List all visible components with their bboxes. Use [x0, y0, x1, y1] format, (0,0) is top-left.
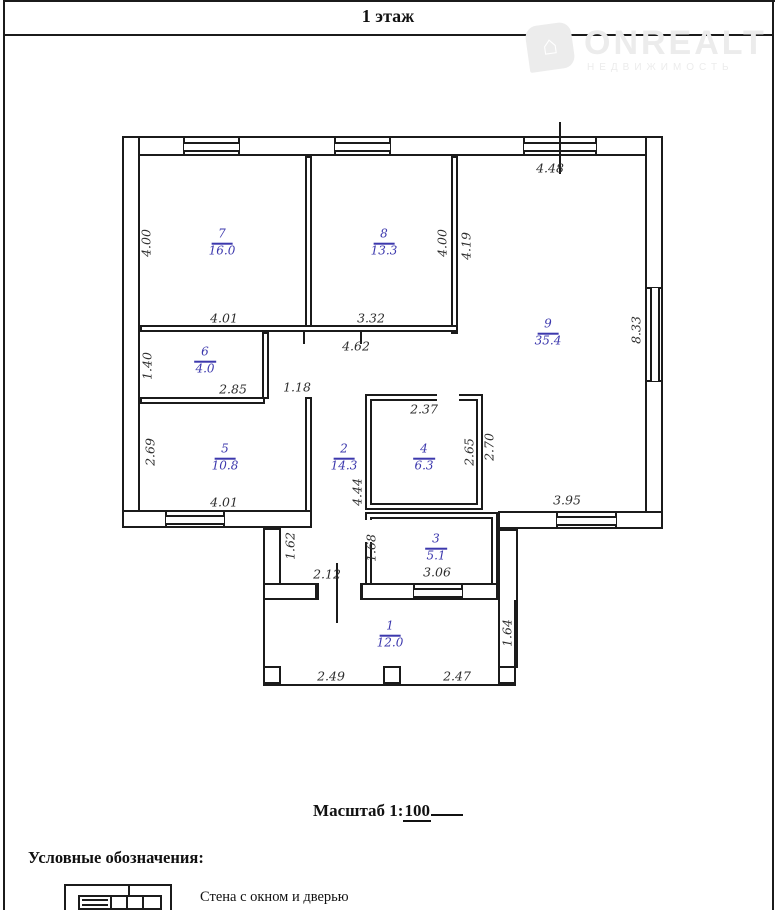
entry-door-tick-left — [317, 583, 319, 600]
dimension-label: 1.62 — [283, 532, 298, 560]
porch-pillar-left — [263, 666, 281, 684]
dimension-label: 3.95 — [553, 493, 581, 508]
porch-pillar-right — [498, 666, 516, 684]
dimension-label: 2.70 — [482, 433, 497, 461]
room-label-7: 716.0 — [209, 228, 236, 259]
dimension-label: 1.40 — [140, 352, 155, 380]
watermark-brand: ONREALT — [584, 24, 767, 63]
dimension-label: 4.48 — [536, 161, 564, 176]
room-label-4: 46.3 — [413, 443, 435, 474]
room-number: 8 — [373, 228, 395, 245]
window-room7 — [183, 136, 240, 156]
legend-heading: Условные обозначения: — [28, 848, 204, 868]
scale-note: Масштаб 1:100 — [0, 801, 776, 821]
scale-underline — [431, 814, 463, 816]
wall-below-rooms7-8 — [140, 325, 458, 332]
room-label-3: 35.1 — [425, 533, 447, 564]
room-label-5: 510.8 — [212, 443, 239, 474]
wall-entry-left-of-door — [263, 583, 317, 600]
watermark-pin-house-icon: ⌂ — [524, 21, 576, 73]
wall-left — [122, 136, 140, 528]
room-label-8: 813.3 — [371, 228, 398, 259]
dimension-label: 1.18 — [283, 380, 311, 395]
dimension-label: 2.49 — [317, 669, 345, 684]
window-room9-right — [645, 287, 663, 382]
dimension-label: 4.44 — [350, 478, 365, 506]
legend-divider-3 — [142, 895, 144, 910]
porch-pillar-middle — [383, 666, 401, 684]
wall-room6-right — [262, 332, 269, 399]
legend-window-hatch — [82, 899, 108, 908]
floor-plan-page: 1 этаж ⌂ ONREALT НЕДВИЖИМОСТЬ 716.0813.3… — [0, 0, 776, 910]
dimension-label: 2.65 — [462, 438, 477, 466]
entry-door-tick-right — [360, 583, 362, 600]
dimension-label: 3.32 — [357, 311, 385, 326]
room-area: 16.0 — [209, 245, 236, 259]
room-area: 13.3 — [371, 245, 398, 259]
window-room8 — [334, 136, 391, 156]
scale-prefix: Масштаб 1: — [313, 801, 403, 820]
room-number: 2 — [333, 443, 355, 460]
dimension-label: 1.64 — [500, 619, 515, 647]
wall-room6-bottom — [140, 397, 265, 404]
dimension-label: 1.68 — [364, 534, 379, 562]
room-area: 35.4 — [535, 335, 562, 349]
dimension-label: 4.00 — [435, 229, 450, 257]
room-number: 1 — [379, 620, 401, 637]
legend-item-label: Стена с окном и дверью — [200, 889, 349, 906]
dimension-label: 3.06 — [423, 565, 451, 580]
dimension-label: 2.69 — [143, 438, 158, 466]
room-area: 12.0 — [377, 637, 404, 651]
room-label-6: 64.0 — [194, 346, 216, 377]
wall-between-room8-room9 — [451, 156, 458, 334]
dimension-label: 2.47 — [443, 669, 471, 684]
room-number: 6 — [194, 346, 216, 363]
dimension-label: 8.33 — [629, 316, 644, 344]
dimension-label: 2.85 — [219, 382, 247, 397]
room-area: 6.3 — [413, 460, 435, 474]
room-number: 5 — [214, 443, 236, 460]
dimension-label: 2.37 — [410, 402, 438, 417]
porch-bottom-line — [263, 684, 516, 686]
room-4-door-opening — [437, 392, 459, 402]
room-label-9: 935.4 — [535, 318, 562, 349]
dimension-label: 4.00 — [139, 229, 154, 257]
window-room5 — [165, 510, 225, 528]
dimension-label: 4.62 — [342, 339, 370, 354]
room-number: 4 — [413, 443, 435, 460]
page-border-top — [3, 0, 775, 2]
room-label-2: 214.3 — [331, 443, 358, 474]
page-border-right — [772, 0, 774, 910]
wall-between-room7-room8 — [305, 156, 312, 327]
dimension-label: 4.19 — [459, 232, 474, 260]
dimension-label: 4.01 — [210, 495, 238, 510]
room-area: 4.0 — [194, 363, 216, 377]
legend-divider-2 — [126, 895, 128, 910]
dimension-label: 4.01 — [210, 311, 238, 326]
dimension-label: 2.12 — [313, 567, 341, 582]
room-label-1: 112.0 — [377, 620, 404, 651]
room-area: 5.1 — [425, 550, 447, 564]
window-room9-bottom — [556, 511, 617, 529]
room-number: 7 — [211, 228, 233, 245]
scale-value: 100 — [403, 801, 431, 822]
room-area: 10.8 — [212, 460, 239, 474]
room-area: 14.3 — [331, 460, 358, 474]
page-border-left — [3, 0, 5, 910]
window-room3 — [413, 583, 463, 600]
watermark-subtitle: НЕДВИЖИМОСТЬ — [587, 62, 734, 73]
legend-divider-1 — [110, 895, 112, 910]
room-number: 3 — [425, 533, 447, 550]
wall-room5-right — [305, 397, 312, 512]
room-number: 9 — [537, 318, 559, 335]
dim-tick-462-a — [303, 332, 305, 344]
